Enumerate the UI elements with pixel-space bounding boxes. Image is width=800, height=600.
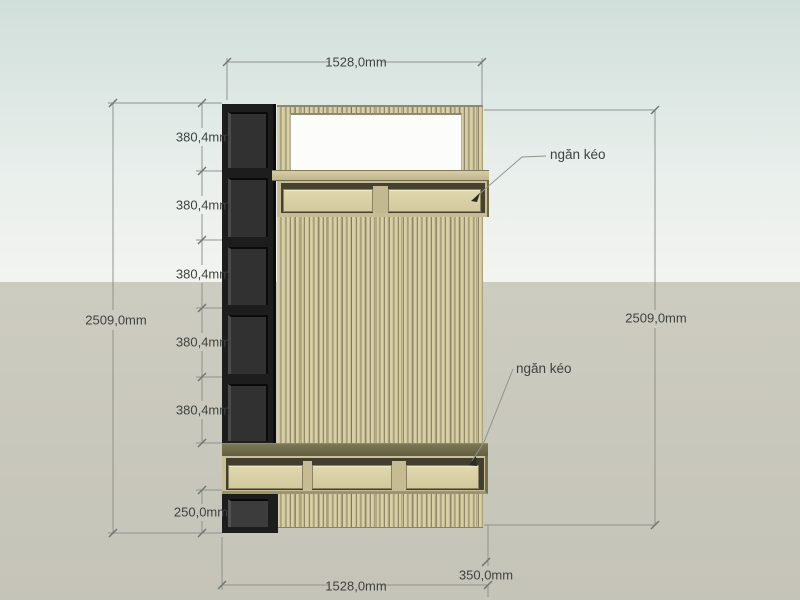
dim-shelf-height-label: 380,4mm [176, 335, 230, 350]
drawer-callout-bottom: ngăn kéo [516, 361, 572, 376]
dim-bottom-width-label: 1528,0mm [325, 579, 386, 594]
drawer-callout-top: ngăn kéo [550, 147, 606, 162]
dim-shelf-height-label: 380,4mm [176, 403, 230, 418]
dim-shelf-height-label: 380,4mm [176, 198, 230, 213]
dim-shelf-height-label: 380,4mm [176, 267, 230, 282]
dim-top-width-label: 1528,0mm [325, 55, 386, 70]
dimension-lines [0, 0, 800, 600]
dim-right-height-label: 2509,0mm [625, 311, 686, 326]
dim-bench-depth-label: 350,0mm [459, 568, 513, 583]
dim-left-height-label: 2509,0mm [85, 313, 146, 328]
furniture-dimension-drawing: 1528,0mm 2509,0mm 2509,0mm 380,4mm 380,4… [0, 0, 800, 600]
dim-bottom-compartment-label: 250,0mm [174, 505, 228, 520]
dim-shelf-height-label: 380,4mm [176, 130, 230, 145]
